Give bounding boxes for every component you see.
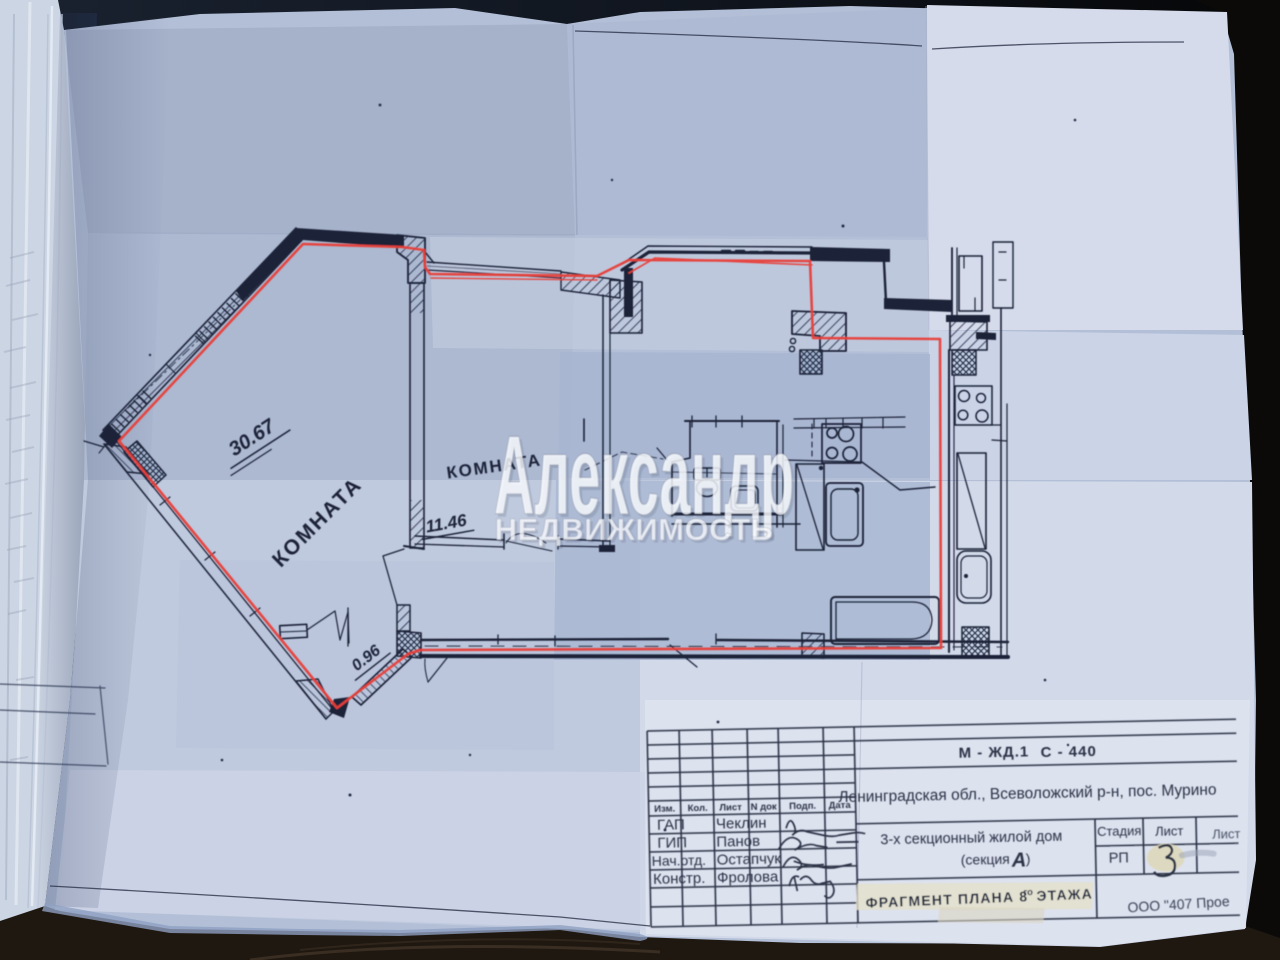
svg-text:Лист: Лист bbox=[1212, 826, 1241, 842]
svg-text:(секция: (секция bbox=[961, 851, 1010, 868]
svg-text:ГИП: ГИП bbox=[657, 834, 687, 852]
svg-text:А: А bbox=[1011, 849, 1027, 871]
svg-text:С - 440: С - 440 bbox=[1040, 743, 1097, 761]
svg-text:Лист: Лист bbox=[1155, 823, 1184, 839]
svg-text:Нач.отд.: Нач.отд. bbox=[652, 852, 707, 869]
svg-text:ЭТАЖА: ЭТАЖА bbox=[1036, 886, 1093, 904]
svg-text:НЕДВИЖИМОСТЬ: НЕДВИЖИМОСТЬ bbox=[495, 512, 774, 547]
svg-text:Констр.: Констр. bbox=[653, 870, 706, 888]
svg-text:Подп.: Подп. bbox=[789, 801, 816, 813]
svg-text:Кол.: Кол. bbox=[688, 803, 708, 814]
svg-text:N док: N док bbox=[751, 801, 778, 813]
svg-text:РП: РП bbox=[1109, 850, 1129, 866]
svg-text:Фролова: Фролова bbox=[717, 868, 779, 886]
svg-text:М - ЖД.1: М - ЖД.1 bbox=[958, 743, 1029, 761]
svg-text:Чеклин: Чеклин bbox=[716, 815, 767, 833]
svg-text:): ) bbox=[1026, 850, 1031, 866]
svg-text:Панов: Панов bbox=[716, 833, 760, 851]
svg-text:Лист: Лист bbox=[719, 802, 742, 813]
svg-text:Изм.: Изм. bbox=[654, 803, 675, 814]
svg-text:Стадия: Стадия bbox=[1097, 823, 1142, 839]
svg-text:го: го bbox=[1023, 887, 1033, 898]
svg-text:ГАП: ГАП bbox=[657, 816, 685, 834]
svg-text:Остапчук: Остапчук bbox=[717, 850, 782, 868]
